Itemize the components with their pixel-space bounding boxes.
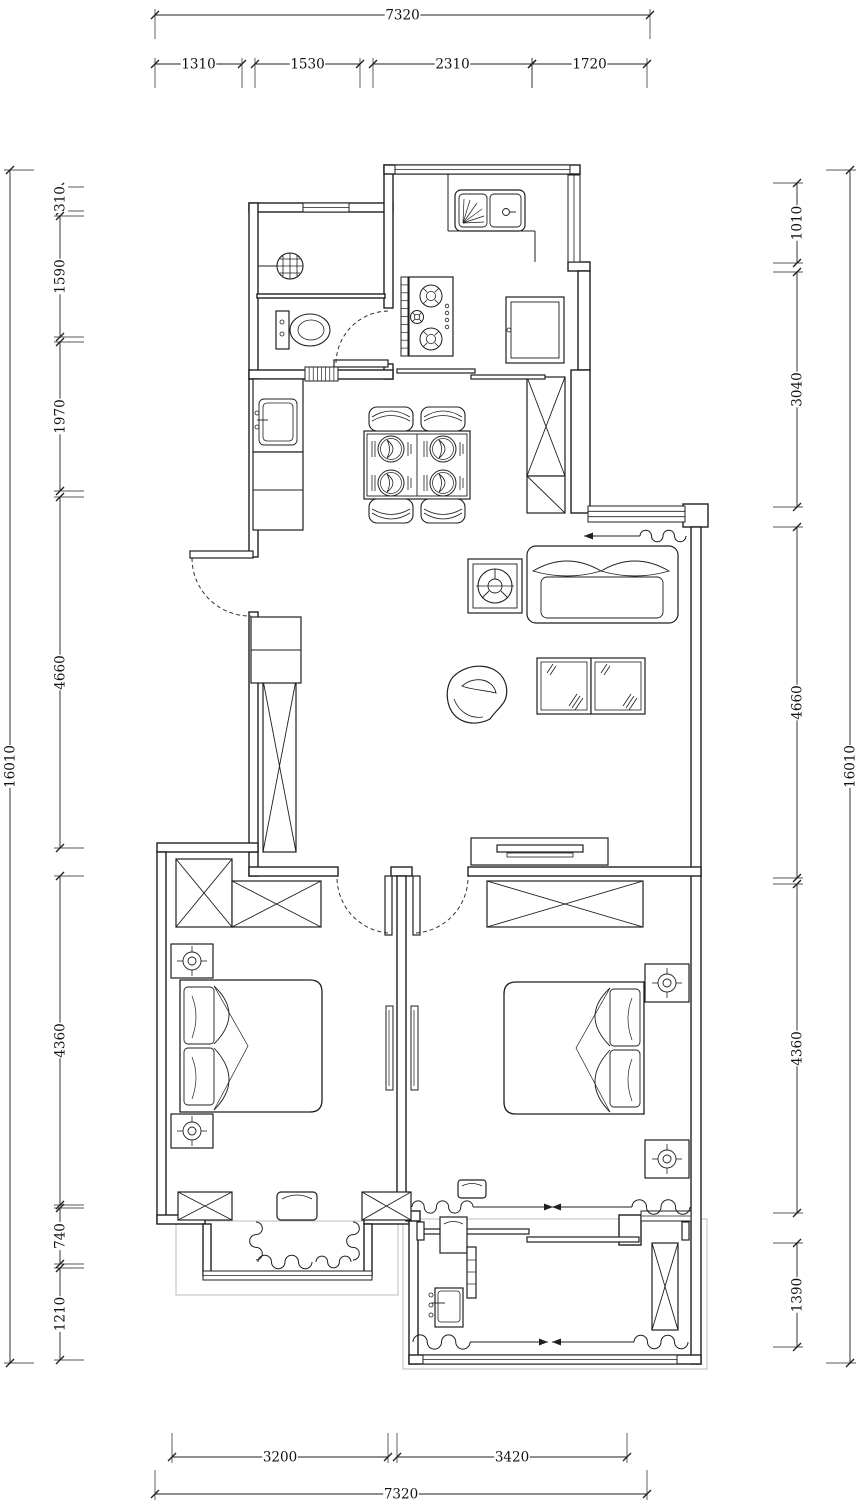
wall-jog-horizontal (157, 843, 258, 852)
svg-text:4660: 4660 (790, 685, 806, 719)
dresser-bed1 (386, 1006, 393, 1090)
wall-bed1-left (157, 852, 166, 1223)
stove (409, 277, 453, 356)
svg-text:4360: 4360 (53, 1023, 69, 1057)
fridge-inner (511, 302, 559, 358)
svg-text:1970: 1970 (53, 399, 69, 433)
svg-text:4660: 4660 (53, 655, 69, 689)
kitchen-sliding-door-panel (397, 369, 475, 373)
wall-bedrooms-top-b (468, 867, 701, 876)
wall-bedrooms-top-a (249, 867, 338, 876)
wall-bath-divider (257, 294, 385, 298)
tv-base (507, 853, 573, 857)
threshold-hatch (305, 367, 338, 381)
wall-bay-side-right (364, 1224, 372, 1276)
shaft-column-right (527, 377, 565, 476)
radiator-kitchen (401, 277, 408, 356)
glass-coffee-table (537, 658, 591, 714)
wardrobe-balcony (652, 1243, 678, 1330)
cabinet-dining-right (527, 476, 565, 513)
bed1-pillow (184, 987, 214, 1044)
kitchen-sink-basin-right (490, 194, 521, 227)
svg-text:1390: 1390 (790, 1278, 806, 1312)
laundry-sink-inner (438, 1291, 460, 1322)
wall-bedrooms-top-pier (391, 867, 412, 876)
toilet-tank (276, 311, 289, 349)
bed2-pillow (610, 989, 640, 1046)
pier-bay-left (178, 1192, 232, 1220)
svg-text:310: 310 (53, 186, 69, 212)
kitchen-sliding-door-panel (471, 375, 545, 379)
wall-kitchen-right (578, 271, 590, 370)
floor-plan: 7320131015302310172032003420732016010310… (0, 0, 860, 1512)
balcony-door-jamb (417, 1222, 424, 1240)
svg-text:16010: 16010 (843, 745, 859, 788)
balcony-door-jamb (682, 1222, 689, 1240)
dining-chair (421, 407, 465, 431)
window-bay (203, 1271, 372, 1280)
bed1-foot-stool (277, 1192, 317, 1220)
wall-dining-right (571, 370, 590, 513)
window-bathroom-top (303, 203, 349, 212)
svg-text:3420: 3420 (495, 1450, 529, 1466)
svg-text:7320: 7320 (384, 1487, 418, 1503)
bed2-pillow (610, 1050, 640, 1107)
dresser-bed2 (411, 1006, 418, 1090)
svg-text:3040: 3040 (790, 372, 806, 406)
svg-text:1530: 1530 (290, 57, 324, 73)
stool-bed2 (458, 1180, 486, 1198)
balcony-sliding-door-panel (421, 1229, 529, 1234)
sofa-seat (541, 577, 663, 618)
wall-bay-side-left (203, 1224, 211, 1276)
pier-bay-right (362, 1192, 411, 1220)
shaft-column-left (263, 680, 296, 852)
window-living-top (588, 506, 685, 522)
wall-kitchen-left-upper (384, 165, 393, 308)
dining-cabinet (253, 452, 303, 530)
window-kitchen-right (568, 175, 580, 262)
wall-living-top-pier (683, 504, 708, 527)
svg-text:16010: 16010 (3, 745, 19, 788)
dining-chair (369, 499, 413, 523)
wardrobe-bed1-b (232, 881, 321, 927)
svg-text:7320: 7320 (385, 8, 419, 24)
floor-plan-page: 7320131015302310172032003420732016010310… (0, 0, 860, 1512)
svg-text:1010: 1010 (790, 206, 806, 240)
dining-chair (369, 407, 413, 431)
svg-text:1590: 1590 (53, 259, 69, 293)
svg-text:4360: 4360 (790, 1031, 806, 1065)
svg-text:2310: 2310 (435, 57, 469, 73)
glass-coffee-table (591, 658, 645, 714)
wall-right-outer (691, 527, 701, 1364)
window-kitchen-top (395, 165, 570, 174)
wall-kitchen-jog (568, 262, 590, 271)
tv-screen (497, 845, 583, 852)
svg-text:1720: 1720 (572, 57, 606, 73)
window-balcony-bottom (423, 1355, 677, 1364)
svg-text:1210: 1210 (53, 1297, 69, 1331)
dining-basin-inner (263, 403, 293, 441)
svg-text:3200: 3200 (263, 1450, 297, 1466)
balcony-cabinet (440, 1217, 467, 1253)
dining-chair (421, 499, 465, 523)
bed1-pillow (184, 1048, 214, 1105)
wall-bath-left (249, 203, 258, 379)
water-heater (467, 1247, 476, 1298)
balcony-sliding-door-panel (527, 1237, 639, 1242)
svg-text:740: 740 (53, 1223, 69, 1249)
wardrobe-bed1-a (176, 859, 232, 927)
wall-bedroom-partition (397, 876, 406, 1215)
svg-text:1310: 1310 (181, 57, 215, 73)
wardrobe-bed2 (487, 881, 643, 927)
